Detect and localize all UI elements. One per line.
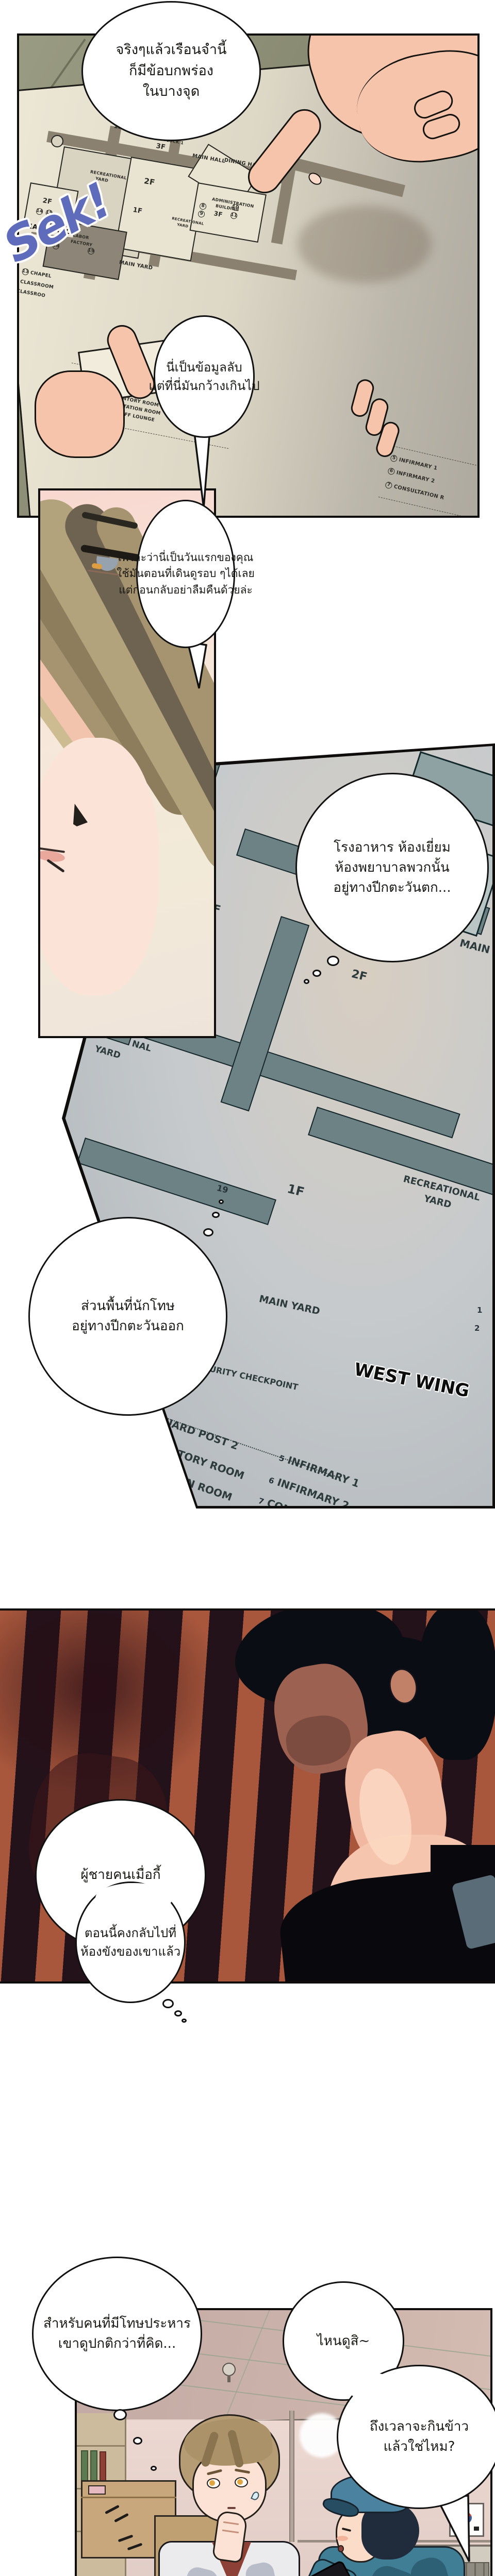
bubble-line: ใช้มันตอนที่เดินดูรอบ ๆได้เลย <box>117 566 255 582</box>
bubble-line: นี่เป็นข้อมูลลับ <box>166 358 242 377</box>
thought-dot <box>151 2466 157 2471</box>
map-num-19: 19 <box>87 247 95 255</box>
bubble-line: ส่วนพื้นที่นักโทษ <box>81 1296 175 1316</box>
sprinkler-stem <box>227 2375 230 2382</box>
thought-dot <box>219 1199 224 1204</box>
bubble-line: โรงอาหาร ห้องเยี่ยม <box>334 838 451 858</box>
bubble-line: แต่ที่นี่มันกว้างเกินไป <box>148 377 259 395</box>
bubble-line: ห้องขังของเขาแล้ว <box>80 1942 180 1961</box>
map3-frag-nal: NAL <box>130 1039 152 1054</box>
thought-dot <box>304 979 309 984</box>
bubble-line: อยู่ทางปีกตะวันออก <box>72 1316 184 1336</box>
bubble-line: แล้วใช่ไหม? <box>384 2437 455 2457</box>
num-5-icon: 5 <box>390 454 398 463</box>
thought-dot <box>212 1212 220 1218</box>
num-7-icon: 7 <box>385 481 393 489</box>
map3-label-1f: 1F <box>286 1181 306 1199</box>
bubble-line: จริงๆแล้วเรือนจำนี้ <box>116 40 227 61</box>
hand-shadow <box>298 206 432 283</box>
map3-num-1-wrap: 1 <box>477 1305 482 1315</box>
map-label-admin-floor: 3F <box>213 210 223 218</box>
character-hair-back <box>419 1608 495 1760</box>
thought-dot <box>133 2437 142 2445</box>
thought-bubble-deathrow: สำหรับคนที่มีโทษประหาร เขาดูปกติกว่าที่ค… <box>32 2257 202 2411</box>
bubble-line: สำหรับคนที่มีโทษประหาร <box>43 2314 191 2334</box>
bubble-line: อยู่ทางปีกตะวันตก... <box>333 878 451 898</box>
map3-leg-num6: 6 <box>268 1476 276 1486</box>
speech-bubble-secret: นี่เป็นข้อมูลลับ แต่ที่นี่มันกว้างเกินไป <box>154 315 255 438</box>
doctor-iris <box>237 2479 243 2485</box>
map3-wall <box>77 1138 276 1225</box>
comic-page: 1F CELL BLOCK 1 3F MAIN HALL DINING HALL… <box>0 0 495 2576</box>
map-label-1f-mid: 1F <box>132 206 143 215</box>
speech-bubble-flaws: จริงๆแล้วเรือนจำนี้ ก็มีข้อบกพร่อง ในบาง… <box>81 1 261 141</box>
doctor-mouth <box>227 2507 236 2509</box>
bubble-merge-patch <box>346 2373 398 2401</box>
thought-dot <box>113 2409 127 2420</box>
bubble-line: ถึงเวลาจะกินข้าว <box>370 2417 469 2437</box>
box-label <box>88 2485 106 2495</box>
map3-leg-num2: 2 <box>134 1435 142 1446</box>
map-num-11: 11 <box>230 212 238 219</box>
thought-bubble-eastwing: ส่วนพื้นที่นักโทษ อยู่ทางปีกตะวันออก <box>28 1217 227 1416</box>
map3-leg-num3: 3 <box>123 1458 131 1468</box>
bubble-tail <box>188 427 224 512</box>
thought-dot <box>203 1228 213 1236</box>
bubble-line: เขาดูปกติกว่าที่คิด... <box>58 2334 176 2354</box>
doctor-iris <box>209 2480 215 2486</box>
map3-num-2: 2 <box>474 1324 480 1333</box>
bubble-line: ในบางจุด <box>143 81 200 103</box>
bubble-line: แต่ก่อนกลับอย่าลืมคืนด้วยล่ะ <box>119 582 252 599</box>
map-label-2f: 2F <box>143 176 156 187</box>
shelf-line <box>77 2445 126 2447</box>
thought-dot <box>162 1999 174 2008</box>
speech-bubble-firstday: เพราะว่านี่เป็นวันแรกของคุณ ใช้มันตอนที่… <box>136 500 235 648</box>
bubble-line: ห้องพยาบาลพวกนั้น <box>335 858 450 878</box>
bubble-line: ตอนนี้คงกลับไปที่ <box>85 1924 176 1942</box>
thought-dot <box>327 956 339 966</box>
binder-green <box>90 2450 97 2484</box>
map3-num-1: 1 <box>477 1306 482 1315</box>
guard-mouth <box>338 2545 344 2552</box>
map3-label-main-frag: MAIN <box>458 937 491 956</box>
map3-legend-1: 1 GUARD POST 2 <box>146 1410 240 1452</box>
map3-label-2f: 2F <box>350 968 368 984</box>
bubble-line: ไหนดูสิ~ <box>317 2331 370 2351</box>
map3-frag-yard: YARD <box>93 1044 122 1061</box>
binder-red <box>100 2451 106 2484</box>
map-post-circle <box>51 135 63 147</box>
thought-dot <box>174 2010 182 2016</box>
thought-dot <box>181 2019 187 2023</box>
num-6-icon: 6 <box>387 467 395 476</box>
thought-dot <box>312 970 321 977</box>
map3-leg-num7: 7 <box>257 1496 266 1506</box>
guard-blush <box>337 2536 348 2541</box>
map3-label-west-wing: WEST WING <box>352 1359 471 1402</box>
stand-pole <box>289 2411 294 2542</box>
map-label-cellblock-floor: 3F <box>155 142 166 151</box>
thought-bubble-westwing: โรงอาหาร ห้องเยี่ยม ห้องพยาบาลพวกนั้น อย… <box>295 773 489 962</box>
map3-leg-num5: 5 <box>278 1453 286 1464</box>
binder-green <box>81 2450 88 2484</box>
bubble-merge-patch <box>95 1883 173 1913</box>
bubble-line: เพราะว่านี่เป็นวันแรกของคุณ <box>118 550 254 566</box>
map3-label-rec-b: YARD <box>423 1193 453 1210</box>
map-num-9: 9 <box>197 210 205 218</box>
fist <box>35 370 125 458</box>
map3-label-mainyard: MAIN YARD <box>258 1293 321 1317</box>
map3-num-2-wrap: 2 <box>474 1323 480 1333</box>
map3-leg-num4: 4 <box>114 1479 123 1489</box>
box-flap-line <box>81 2497 176 2498</box>
sprinkler-icon <box>222 2363 236 2376</box>
bubble-line: ก็มีข้อบกพร่อง <box>129 61 213 82</box>
